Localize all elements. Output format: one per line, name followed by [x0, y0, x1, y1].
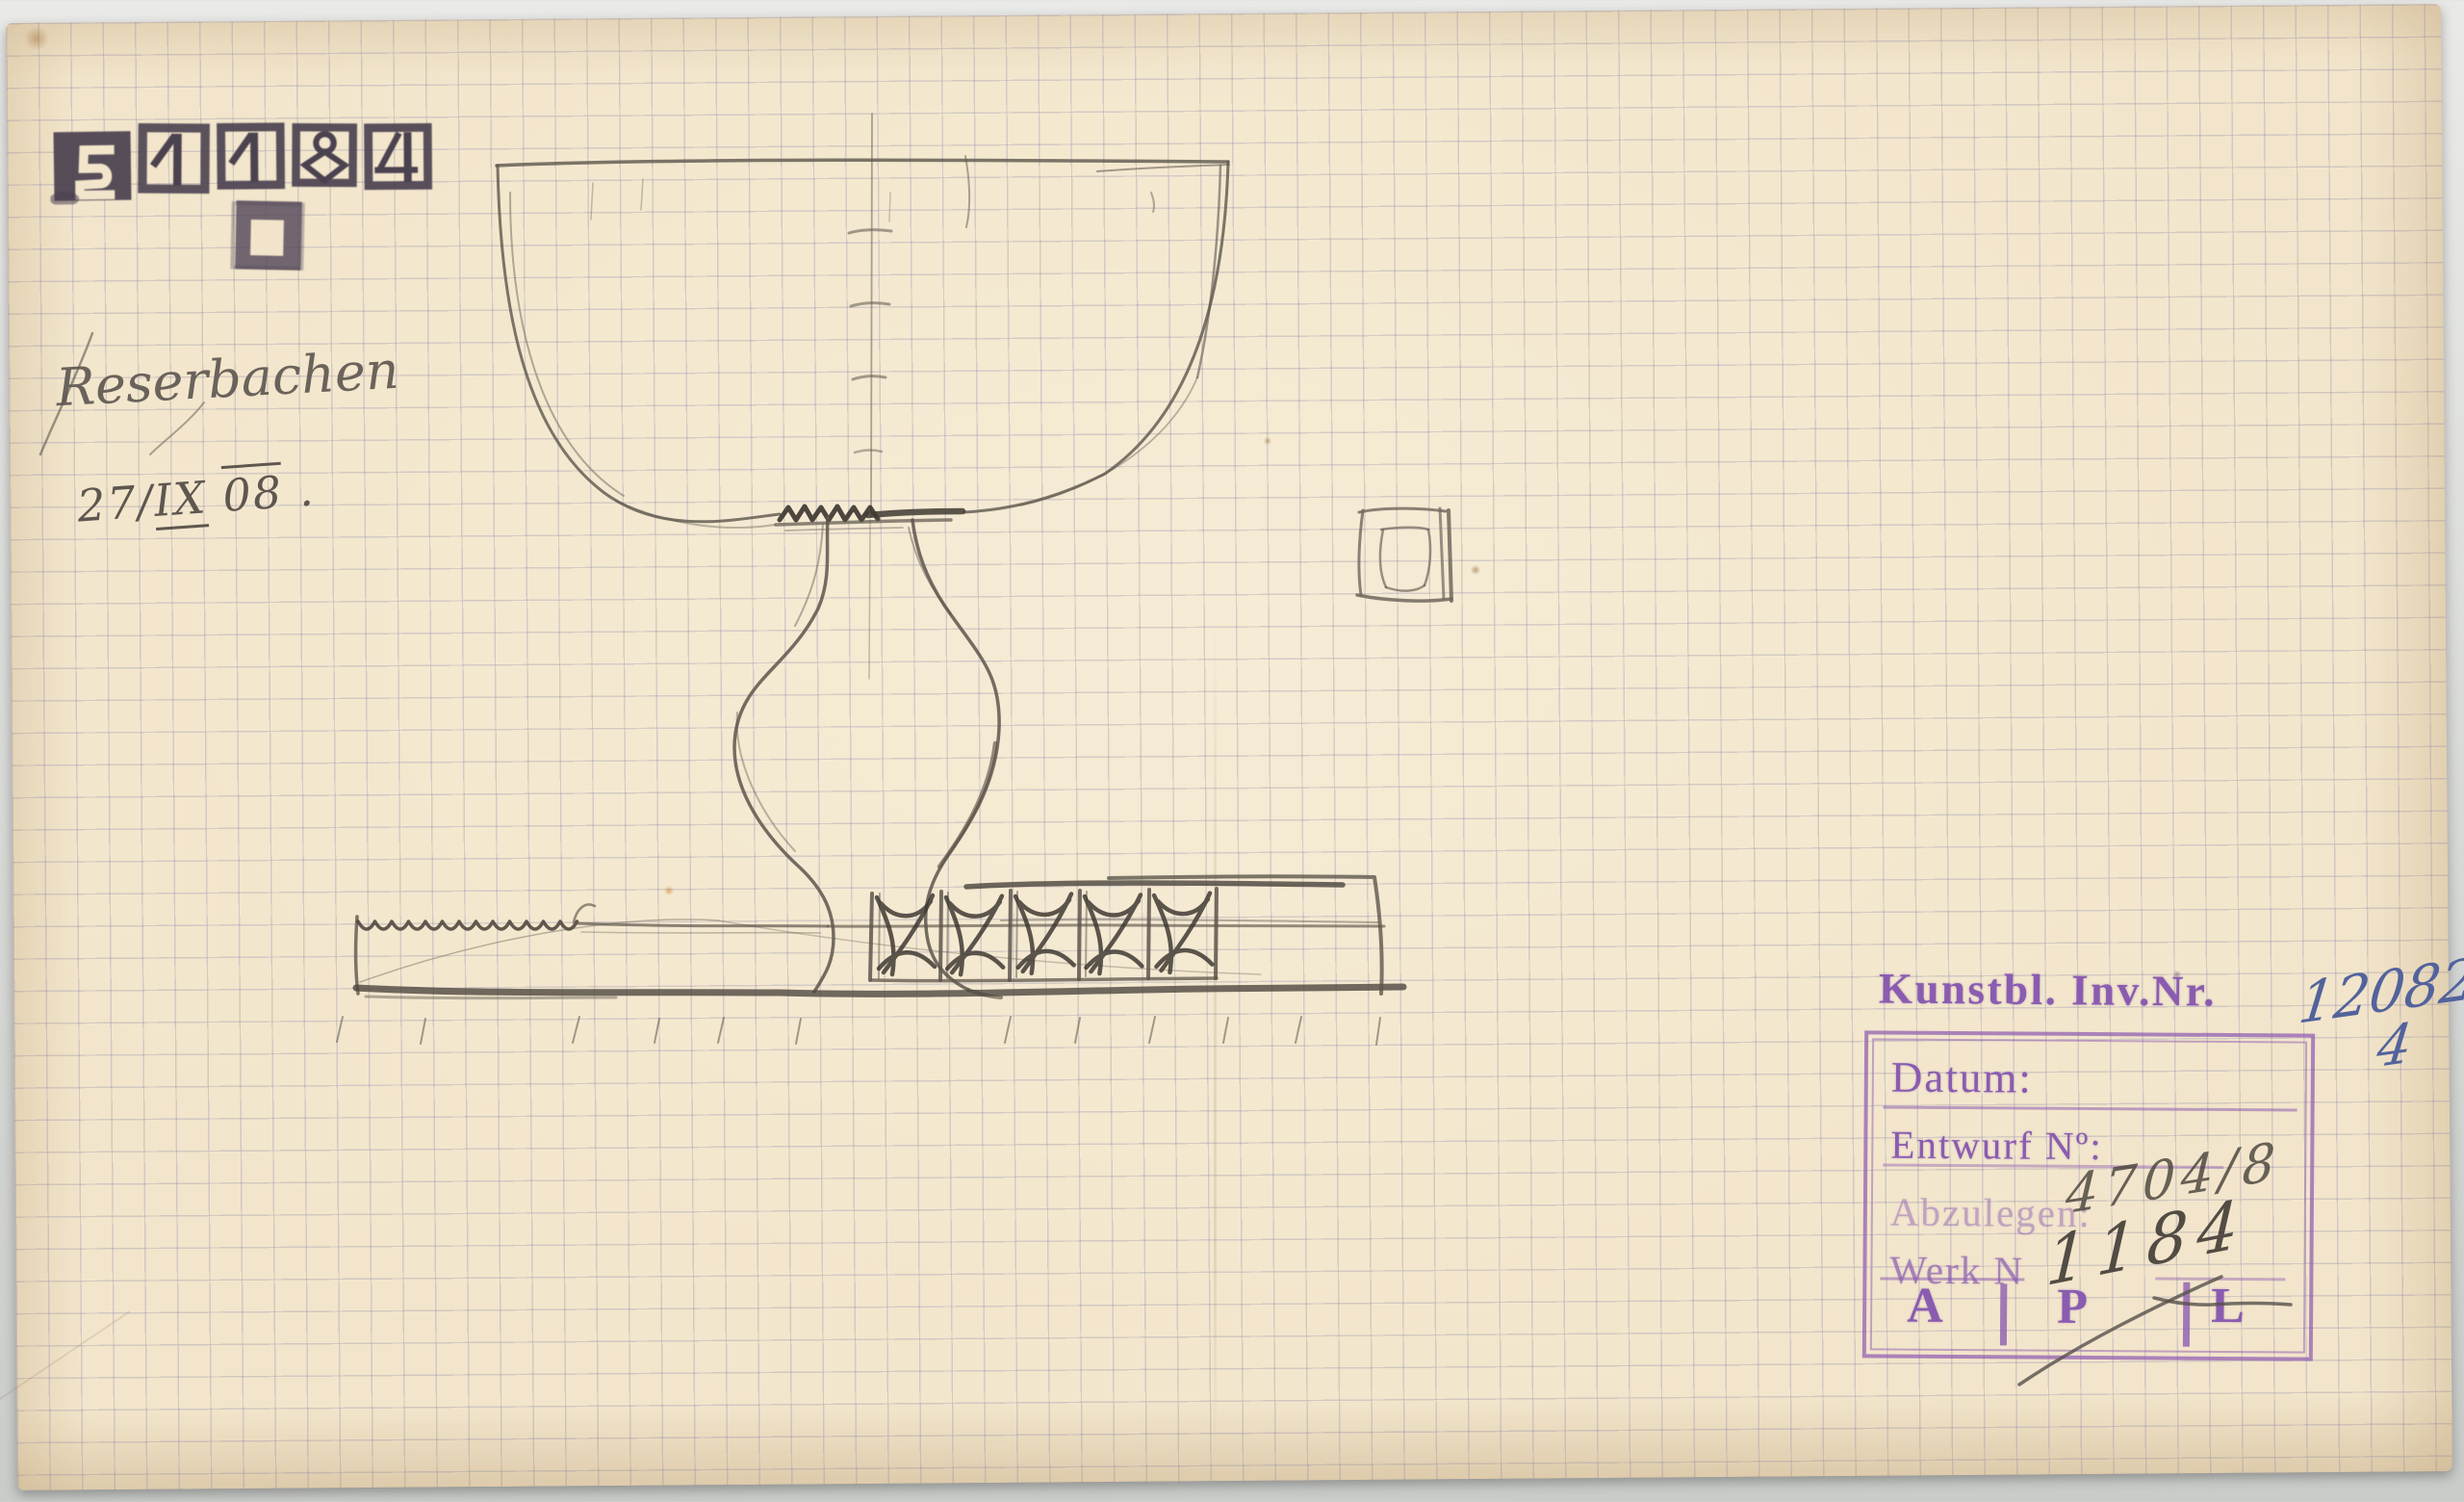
date-month-roman: IX — [152, 471, 209, 531]
date-year: 08 — [220, 462, 284, 522]
stamp-box-divider-bar — [2000, 1283, 2007, 1345]
number-stamp-digit-1 — [138, 120, 212, 198]
paper-speck — [1264, 437, 1271, 445]
stamp-box-letter-l: L — [2211, 1278, 2245, 1334]
date-period: . — [281, 463, 317, 517]
stamp-box-row-datum: Datum: — [1891, 1052, 2033, 1103]
number-stamp-digit-5 — [49, 126, 135, 204]
paper-speck — [664, 886, 674, 895]
paper-speck — [1471, 565, 1480, 575]
square-monogram-stamp — [230, 197, 307, 274]
stamp-box-letter-a: A — [1907, 1278, 1943, 1334]
paper-crease-vertical — [1214, 616, 1217, 1463]
number-stamp-digit-1 — [217, 118, 287, 195]
number-stamp-row — [50, 117, 435, 204]
number-stamp-digit-4 — [364, 118, 434, 196]
paper-stain — [23, 27, 50, 50]
stamp-box-row-entwurf: Entwurf Nº: — [1890, 1122, 2103, 1170]
number-stamp-digit-8 — [292, 117, 358, 194]
stamp-box-divider-bar — [2183, 1282, 2190, 1347]
inventory-stamp-label: Kunstbl. Inv.Nr. — [1879, 963, 2217, 1016]
date-day: 27/ — [75, 475, 156, 531]
